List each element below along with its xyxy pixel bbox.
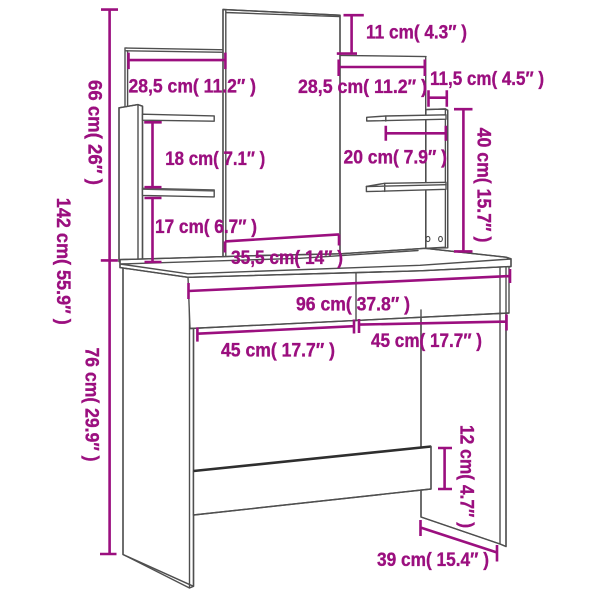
svg-text:142 cm( 55.9″ ): 142 cm( 55.9″ ) bbox=[52, 198, 73, 325]
svg-text:20 cm( 7.9″ ): 20 cm( 7.9″ ) bbox=[344, 148, 448, 169]
svg-text:28,5 cm( 11.2″ ): 28,5 cm( 11.2″ ) bbox=[298, 77, 427, 98]
svg-text:28,5 cm( 11.2″ ): 28,5 cm( 11.2″ ) bbox=[129, 77, 257, 98]
svg-text:35,5 cm( 14″ ): 35,5 cm( 14″ ) bbox=[231, 248, 343, 269]
svg-text:18 cm( 7.1″ ): 18 cm( 7.1″ ) bbox=[165, 149, 265, 170]
svg-text:66 cm( 26″ ): 66 cm( 26″ ) bbox=[84, 80, 105, 185]
svg-text:45 cm( 17.7″ ): 45 cm( 17.7″ ) bbox=[371, 331, 482, 352]
svg-text:12 cm( 4.7″ ): 12 cm( 4.7″ ) bbox=[456, 425, 477, 528]
svg-text:11,5 cm( 4.5″ ): 11,5 cm( 4.5″ ) bbox=[430, 69, 544, 90]
svg-text:45 cm( 17.7″ ): 45 cm( 17.7″ ) bbox=[221, 341, 335, 362]
svg-text:39 cm( 15.4″ ): 39 cm( 15.4″ ) bbox=[377, 550, 489, 571]
svg-text:76 cm( 29.9″ ): 76 cm( 29.9″ ) bbox=[81, 348, 102, 462]
svg-text:40 cm( 15.7″ ): 40 cm( 15.7″ ) bbox=[473, 128, 494, 243]
svg-text:96 cm( 37.8″ ): 96 cm( 37.8″ ) bbox=[296, 295, 410, 316]
svg-text:11 cm( 4.3″ ): 11 cm( 4.3″ ) bbox=[366, 22, 467, 43]
svg-text:17 cm( 6.7″ ): 17 cm( 6.7″ ) bbox=[155, 217, 257, 238]
